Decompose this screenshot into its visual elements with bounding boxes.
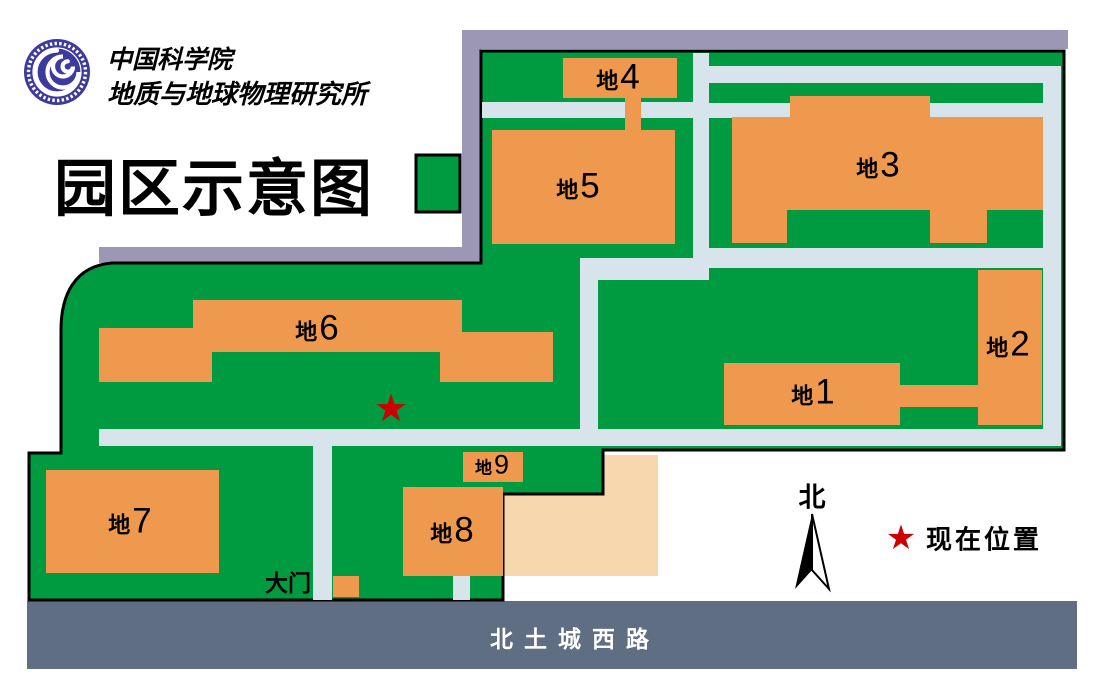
building-di-3-north-wing <box>790 96 930 117</box>
path-main-horizontal <box>99 429 1061 446</box>
building-di-3-southwest-wing <box>732 210 787 243</box>
path-center-vertical-upper <box>693 53 709 280</box>
path-gate-vertical <box>313 446 332 600</box>
sidewalk-left-band <box>462 49 481 263</box>
building-label-di-1: 地1 <box>791 375 834 411</box>
north-label: 北 <box>799 476 826 515</box>
campus-map-page: 中国科学院 地质与地球物理研究所 园区示意图 地1 地2 地3 地4 地5 地6… <box>0 0 1104 694</box>
path-building8-south <box>453 576 470 600</box>
building-di-6-east <box>440 332 553 382</box>
building-di-3-south-wing <box>930 210 987 243</box>
current-location-star-icon: ★ <box>374 390 408 428</box>
org-name-line1: 中国科学院 <box>107 40 232 76</box>
building-label-di-5: 地5 <box>556 169 599 205</box>
building-label-di-7: 地7 <box>108 504 151 540</box>
building-connector-4-5 <box>625 98 641 137</box>
legend-star-icon: ★ <box>886 521 916 555</box>
path-middle-horizontal <box>693 248 1061 268</box>
building-label-di-8: 地8 <box>430 513 473 549</box>
building-label-di-2: 地2 <box>986 327 1029 363</box>
building-connector-1-2 <box>900 385 978 407</box>
legend-campus-square <box>416 155 460 212</box>
path-middle-jog <box>580 258 709 280</box>
north-arrow-icon-right <box>812 514 829 589</box>
road-name-label: 北土城西路 <box>490 620 660 654</box>
org-name-line2: 地质与地球物理研究所 <box>107 74 367 111</box>
current-location-legend-label: 现在位置 <box>926 520 1042 557</box>
building-label-di-9: 地9 <box>475 451 509 478</box>
path-north-upper <box>709 66 1043 83</box>
path-northwest-horizontal <box>482 102 693 118</box>
building-label-di-3: 地3 <box>856 148 899 184</box>
page-title: 园区示意图 <box>54 138 374 228</box>
institute-logo-icon <box>22 37 92 107</box>
gate-label: 大门 <box>265 564 311 598</box>
north-arrow-icon <box>795 514 812 589</box>
building-label-di-6: 地6 <box>295 311 338 347</box>
sidewalk-mid-band <box>99 247 481 263</box>
sidewalk-top-band <box>462 30 1068 49</box>
path-center-vertical-lower <box>580 268 598 446</box>
building-gatehouse <box>333 576 359 597</box>
building-label-di-4: 地4 <box>596 60 639 96</box>
